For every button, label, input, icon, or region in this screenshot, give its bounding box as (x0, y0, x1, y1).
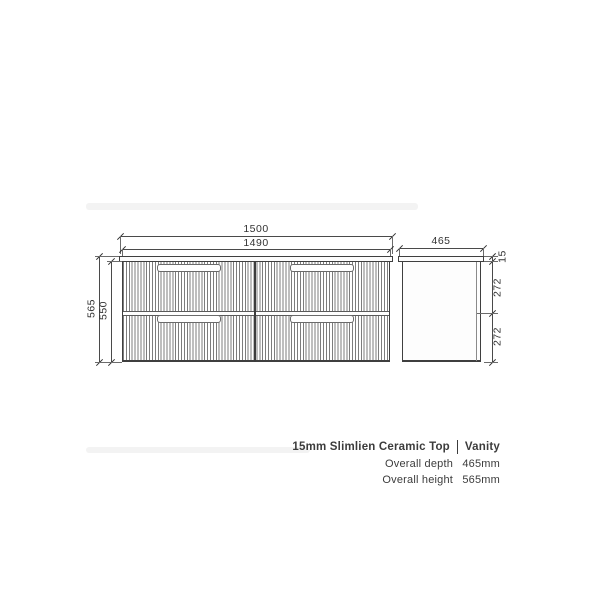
spec-depth-row: Overall depth 465mm (292, 458, 500, 470)
extension-line (483, 248, 484, 256)
spec-title: 15mm Slimlien Ceramic Top Vanity (292, 440, 500, 454)
extension-line (484, 362, 498, 363)
extension-line (399, 248, 400, 256)
dim-label-1500: 1500 (226, 224, 286, 235)
dim-label-1490: 1490 (226, 238, 286, 249)
technical-drawing-canvas: 1500 1490 565 550 (0, 0, 600, 600)
dim-label-465: 465 (411, 236, 471, 247)
scan-artifact-top (86, 203, 418, 210)
drawer-handle-bottom-right (290, 315, 354, 323)
spec-height-value: 565mm (462, 474, 500, 486)
scan-artifact-middle (86, 447, 310, 453)
side-cabinet (402, 261, 481, 362)
drawer-handle-top-right (290, 264, 354, 272)
dim-label-272-upper: 272 (493, 268, 504, 308)
spec-depth-value: 465mm (462, 458, 500, 470)
spec-height-label: Overall height (382, 474, 453, 486)
extension-line (95, 256, 119, 257)
dim-label-272-lower: 272 (493, 317, 504, 357)
dim-label-550: 550 (99, 291, 110, 331)
dim-label-565: 565 (87, 289, 98, 329)
spec-title-product: 15mm Slimlien Ceramic Top (292, 441, 450, 453)
spec-depth-label: Overall depth (385, 458, 453, 470)
drawer-handle-top-left (157, 264, 221, 272)
drawer-handle-bottom-left (157, 315, 221, 323)
title-separator-bar (457, 440, 458, 454)
extension-line (477, 313, 498, 314)
extension-line (107, 261, 122, 262)
dim-line-465 (399, 248, 483, 249)
dim-line-1490 (122, 249, 390, 250)
dim-line-550 (111, 261, 112, 362)
extension-line (95, 362, 122, 363)
front-center-divider (254, 261, 256, 362)
spec-title-category: Vanity (465, 441, 500, 453)
spec-block: 15mm Slimlien Ceramic Top Vanity Overall… (292, 440, 500, 486)
spec-height-row: Overall height 565mm (292, 474, 500, 486)
side-drawer-front-line (476, 262, 477, 361)
